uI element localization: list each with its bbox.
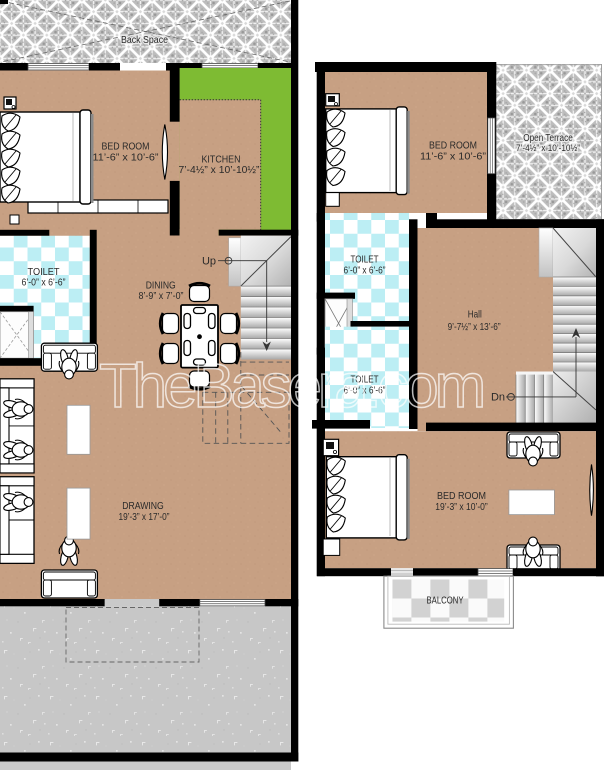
svg-text:Back Space: Back Space	[121, 35, 168, 46]
svg-text:TOILET: TOILET	[28, 266, 61, 278]
svg-text:TOILET: TOILET	[351, 254, 379, 266]
svg-text:9’-7½” x 13’-6”: 9’-7½” x 13’-6”	[448, 322, 501, 333]
svg-text:8’-9” x 7’-0”: 8’-9” x 7’-0”	[139, 291, 184, 302]
svg-text:19’-3” x 17’-0”: 19’-3” x 17’-0”	[119, 512, 170, 523]
svg-text:7’-4½” x 10’-10½”: 7’-4½” x 10’-10½”	[516, 143, 580, 154]
svg-text:11’-6” x 10’-6”: 11’-6” x 10’-6”	[93, 152, 159, 163]
svg-text:7’-4½” x 10’-10½”: 7’-4½” x 10’-10½”	[179, 165, 260, 176]
svg-text:DINING: DINING	[146, 280, 176, 292]
svg-text:DRAWING: DRAWING	[122, 500, 164, 512]
svg-text:TheBasera.com: TheBasera.com	[99, 352, 483, 421]
svg-text:Hall: Hall	[468, 308, 482, 320]
svg-text:KITCHEN: KITCHEN	[202, 154, 241, 166]
svg-text:BALCONY: BALCONY	[427, 594, 464, 606]
svg-text:6’-0” x 6’-6”: 6’-0” x 6’-6”	[344, 266, 386, 277]
svg-text:BED ROOM: BED ROOM	[437, 490, 486, 502]
svg-text:BED ROOM: BED ROOM	[429, 140, 477, 152]
svg-text:6’-0” x 6’-6”: 6’-0” x 6’-6”	[22, 278, 66, 289]
svg-text:BED ROOM: BED ROOM	[102, 140, 150, 152]
svg-text:19’-3” x 10’-0”: 19’-3” x 10’-0”	[435, 502, 488, 513]
svg-text:Dn: Dn	[491, 392, 505, 404]
svg-text:Up: Up	[202, 256, 216, 268]
svg-text:11’-6” x 10’-6”: 11’-6” x 10’-6”	[420, 152, 486, 163]
